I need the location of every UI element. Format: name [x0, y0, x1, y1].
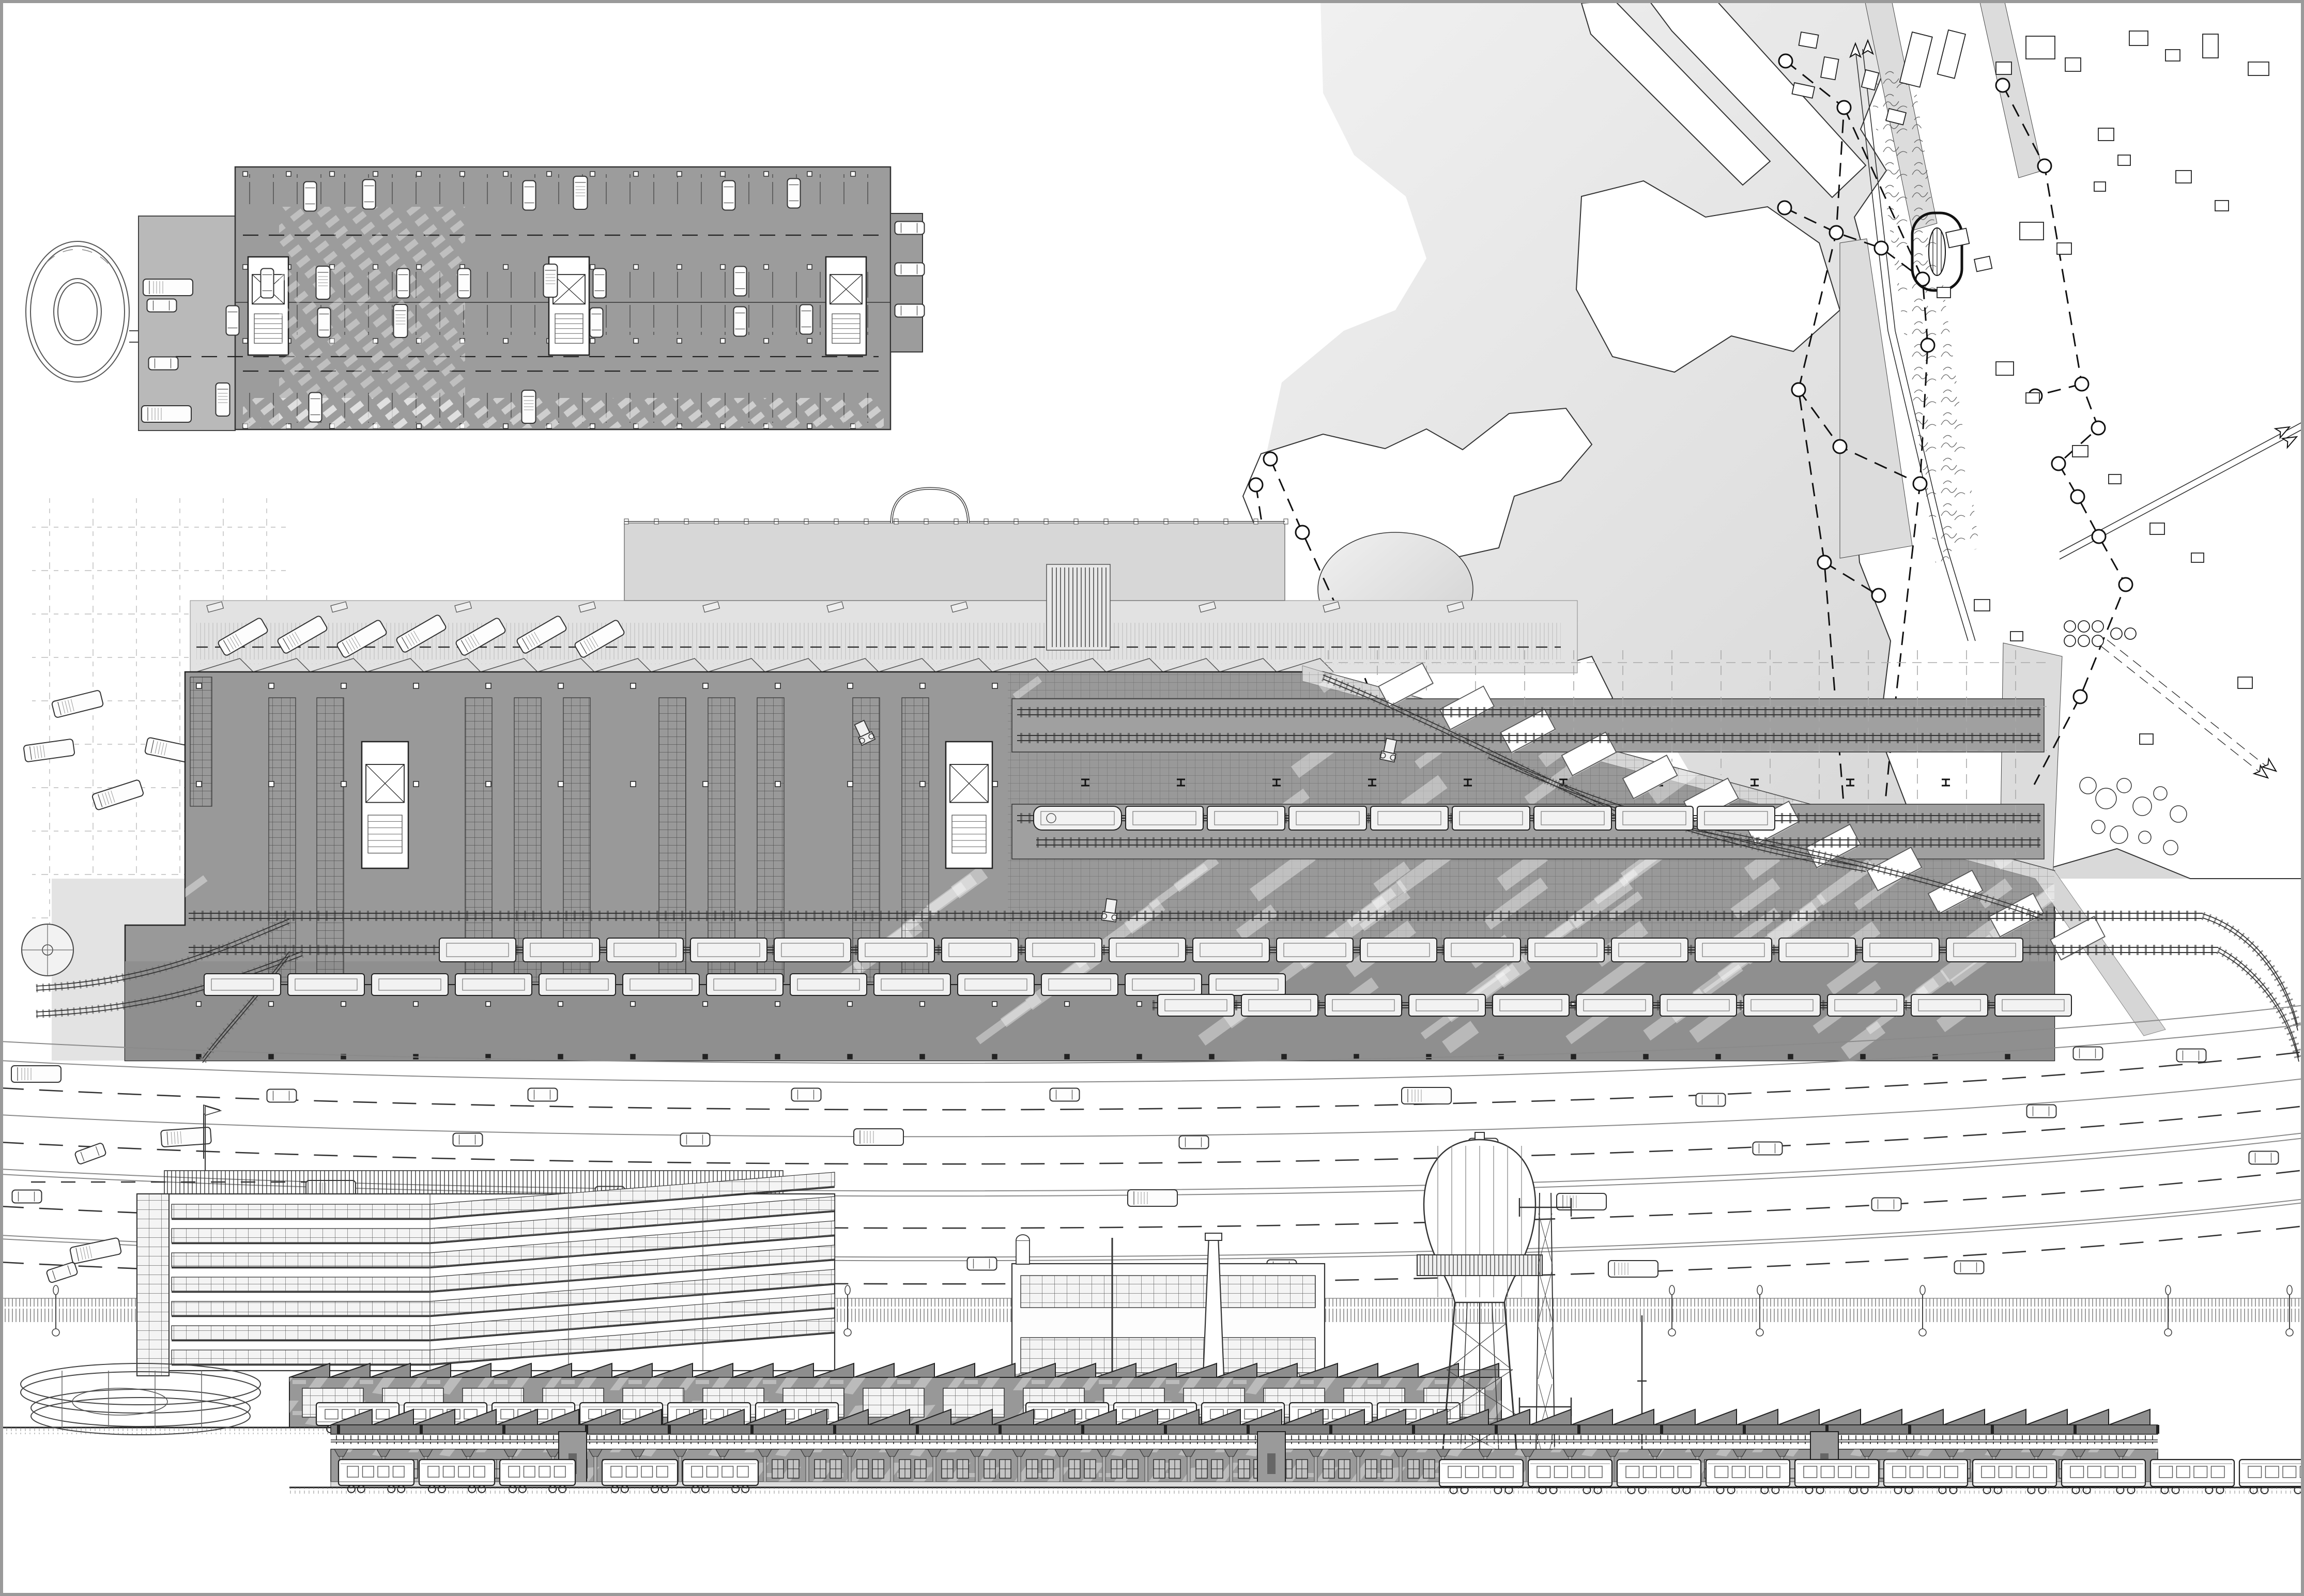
wagon — [439, 938, 523, 962]
wagon-body — [1444, 938, 1520, 962]
car-window — [2211, 1466, 2225, 1478]
map-building — [1996, 62, 2011, 74]
column — [848, 1054, 852, 1059]
wagon-body — [1534, 806, 1611, 830]
wagon — [706, 974, 790, 995]
car-plan — [309, 393, 322, 422]
lamp-base — [1919, 1329, 1926, 1336]
map-building — [2026, 393, 2039, 403]
car-plan — [895, 304, 925, 317]
car-window — [1999, 1466, 2013, 1478]
route-node — [1913, 477, 1927, 490]
route-node — [1249, 478, 1263, 492]
wagon-body — [1041, 974, 1118, 995]
wagon-body — [1493, 994, 1569, 1016]
lamp-head — [1757, 1285, 1762, 1295]
wagon — [1193, 938, 1277, 962]
route-node — [2092, 530, 2106, 543]
map-building — [2094, 182, 2106, 191]
bracket — [1577, 1425, 1580, 1434]
column — [677, 339, 682, 343]
vehicle-body — [1753, 1142, 1783, 1155]
car-window — [2248, 1466, 2262, 1478]
vehicle-body — [800, 305, 813, 334]
column — [1716, 1054, 1721, 1059]
route-node — [1837, 101, 1851, 114]
route-node — [2119, 578, 2132, 591]
truck-plan — [11, 1066, 61, 1082]
mushroom-stem — [763, 1456, 766, 1482]
lamp-base — [1756, 1329, 1763, 1336]
vehicle-body — [734, 267, 747, 296]
van-plan — [316, 266, 330, 299]
wagon — [1360, 938, 1444, 962]
car-window — [1910, 1466, 1924, 1478]
wagon-body — [1995, 994, 2071, 1016]
wagon — [1534, 806, 1616, 830]
column — [413, 781, 419, 787]
bracket — [1081, 1425, 1084, 1434]
car-window — [1572, 1466, 1585, 1478]
wagon-body — [1911, 994, 1988, 1016]
car-plan — [1753, 1142, 1783, 1155]
car-window — [738, 1466, 749, 1477]
car-plan — [1696, 1094, 1726, 1107]
car-window — [1678, 1466, 1692, 1478]
column — [417, 172, 421, 176]
wagon — [455, 974, 539, 995]
wagon-body — [288, 974, 364, 995]
column — [243, 339, 248, 343]
wagon-body — [439, 938, 516, 962]
map-building — [2020, 222, 2044, 240]
bracket — [750, 1425, 754, 1434]
elevator-core — [946, 742, 992, 868]
column — [848, 781, 853, 787]
mushroom-stem — [1230, 1456, 1233, 1482]
vehicle-body — [1872, 1198, 1901, 1211]
wagon-body — [1289, 806, 1366, 830]
truck-plan — [1608, 1261, 1658, 1277]
vehicle-body — [142, 406, 191, 422]
map-building — [2238, 677, 2252, 688]
vehicle-body — [261, 269, 274, 298]
column — [269, 1054, 273, 1059]
car-plan — [2249, 1152, 2279, 1164]
vehicle-body — [458, 269, 471, 298]
vehicle-body — [1179, 1136, 1209, 1149]
column — [631, 1054, 635, 1059]
wagon — [774, 938, 858, 962]
column — [720, 172, 725, 176]
car-plan — [2073, 1047, 2103, 1060]
wagon-body — [1697, 806, 1775, 830]
route-node — [1264, 452, 1277, 466]
car-window — [443, 1466, 455, 1477]
column — [631, 1002, 635, 1006]
column — [634, 172, 638, 176]
column — [558, 781, 563, 787]
column — [558, 1054, 563, 1059]
mushroom-stem — [1314, 1456, 1317, 1482]
wagon-body — [1660, 994, 1737, 1016]
vehicle-body — [1696, 1094, 1726, 1107]
car-plan — [147, 299, 177, 312]
column — [775, 1002, 780, 1006]
column — [677, 172, 682, 176]
column — [807, 339, 812, 343]
wagon — [1611, 938, 1695, 962]
wagon-body — [372, 974, 448, 995]
route-node — [2092, 421, 2105, 435]
column — [848, 683, 853, 688]
car-plan — [363, 180, 376, 209]
car-window — [1157, 1409, 1170, 1419]
finial — [1475, 1132, 1484, 1140]
column — [373, 172, 378, 176]
wagon-body — [1360, 938, 1437, 962]
vehicle-body — [2073, 1047, 2103, 1060]
bracket — [916, 1425, 919, 1434]
column — [330, 172, 334, 176]
car-window — [641, 1466, 653, 1477]
car-plan — [1050, 1088, 1080, 1101]
column — [1282, 1054, 1286, 1059]
wagon-body — [958, 974, 1034, 995]
wagon — [288, 974, 372, 995]
column — [590, 172, 595, 176]
wagon — [690, 938, 774, 962]
truck-plan — [143, 279, 193, 296]
car-plan — [1955, 1261, 1984, 1274]
car-window — [363, 1466, 374, 1477]
wagon-body — [1371, 806, 1448, 830]
lamp-head — [53, 1285, 58, 1295]
column — [503, 339, 508, 343]
mushroom-stem — [1145, 1456, 1148, 1482]
wagon — [623, 974, 706, 995]
car-plan — [590, 308, 603, 337]
vehicle-body — [304, 182, 317, 211]
wagon-body — [1193, 938, 1269, 962]
wagon-body — [1325, 994, 1402, 1016]
tractor-body — [1384, 738, 1396, 754]
lamp-head — [1920, 1285, 1925, 1295]
rail-ties — [189, 911, 2203, 921]
vehicle-body — [149, 357, 178, 370]
column — [1065, 1002, 1069, 1006]
vehicle-body — [147, 299, 177, 312]
car-plan — [788, 179, 801, 208]
bracket — [999, 1425, 1002, 1434]
car-plan — [149, 357, 178, 370]
wagon — [1528, 938, 1611, 962]
van-plan — [394, 304, 408, 337]
eave-fascia — [331, 1425, 2158, 1434]
car-window — [1643, 1466, 1657, 1478]
map-building — [2010, 632, 2023, 641]
car-window — [657, 1466, 668, 1477]
column — [720, 339, 725, 343]
wagon-body — [1827, 994, 1904, 1016]
car-window — [1945, 1466, 1958, 1478]
car-window — [2105, 1466, 2118, 1478]
wagon — [1241, 994, 1325, 1016]
wagon — [1109, 938, 1193, 962]
tank — [2092, 621, 2103, 632]
car-window — [2088, 1466, 2101, 1478]
column — [807, 172, 812, 176]
column — [413, 1002, 418, 1006]
car-window — [1821, 1466, 1835, 1478]
floor-window-band — [172, 1277, 430, 1291]
column — [503, 172, 508, 176]
column — [764, 265, 769, 269]
car-plan — [723, 181, 735, 210]
map-building — [1821, 57, 1839, 80]
column — [1861, 1054, 1865, 1059]
bracket — [1743, 1425, 1746, 1434]
column — [243, 172, 248, 176]
car-window — [1893, 1466, 1906, 1478]
wagon — [942, 938, 1025, 962]
map-building — [1799, 32, 1818, 49]
car-plan — [261, 269, 274, 298]
column — [1137, 1002, 1142, 1006]
map-building — [2248, 62, 2269, 75]
wagon — [1863, 938, 1946, 962]
map-building — [2176, 171, 2191, 183]
column — [286, 172, 291, 176]
vehicle-body — [2177, 1049, 2206, 1062]
wagon — [958, 974, 1041, 995]
truck-plan — [854, 1129, 903, 1145]
column — [503, 265, 508, 269]
column — [920, 683, 925, 688]
column — [486, 781, 491, 787]
wagon-body — [1744, 994, 1820, 1016]
car-plan — [681, 1133, 710, 1146]
wagon — [1126, 806, 1207, 830]
car-window — [1537, 1466, 1550, 1478]
lamp-head — [2165, 1285, 2171, 1295]
car-window — [2034, 1466, 2047, 1478]
column — [1209, 1054, 1214, 1059]
car-plan — [453, 1133, 483, 1146]
elevator-core — [362, 742, 408, 868]
wagon-body — [1277, 938, 1353, 962]
map-building — [2057, 243, 2071, 254]
vehicle-body — [1050, 1088, 1080, 1101]
office-window-band — [1021, 1276, 1315, 1308]
vehicle-body — [1955, 1261, 1984, 1274]
wagon-body — [1158, 994, 1234, 1016]
column — [631, 683, 636, 688]
car-window — [1804, 1466, 1817, 1478]
wagon — [523, 938, 607, 962]
wagon — [790, 974, 874, 995]
wagon — [1779, 938, 1863, 962]
vehicle-body — [226, 306, 239, 335]
vehicle-body — [453, 1133, 483, 1146]
mushroom-stem — [1018, 1456, 1021, 1482]
car-plan — [895, 263, 925, 276]
car-window — [1245, 1409, 1257, 1419]
car-window — [1749, 1466, 1763, 1478]
route-node — [1779, 54, 1792, 68]
wagon-body — [1779, 938, 1855, 962]
route-node — [1833, 440, 1847, 453]
vehicle-body — [397, 269, 410, 298]
vehicle-body — [2027, 1105, 2056, 1118]
wagon — [1125, 974, 1209, 995]
column — [634, 339, 638, 343]
car-window — [378, 1466, 389, 1477]
wagon-body — [858, 938, 934, 962]
car-window — [539, 1466, 550, 1477]
wagon — [1616, 806, 1697, 830]
car-window — [524, 1466, 535, 1477]
mushroom-stem — [1187, 1456, 1190, 1482]
column — [807, 265, 812, 269]
car-window — [2123, 1466, 2136, 1478]
lamp-base — [52, 1329, 59, 1336]
car-window — [428, 1466, 439, 1477]
column — [1137, 1054, 1142, 1059]
vehicle-body — [1402, 1087, 1451, 1104]
wagon — [1277, 938, 1360, 962]
column — [341, 1002, 346, 1006]
chimney-cap — [1205, 1233, 1222, 1240]
column — [269, 683, 274, 688]
mushroom-stem — [1102, 1456, 1105, 1482]
car-window — [1466, 1466, 1479, 1478]
wagon-body — [1109, 938, 1186, 962]
car-window — [722, 1466, 733, 1477]
column — [269, 781, 274, 787]
wagon — [1911, 994, 1995, 1016]
column — [460, 172, 465, 176]
shed-window — [943, 1388, 1004, 1417]
vehicle-body — [792, 1088, 821, 1101]
wagon-body — [942, 938, 1018, 962]
car-plan — [226, 306, 239, 335]
car-window — [347, 1466, 359, 1477]
route-node — [1818, 556, 1831, 569]
column — [764, 172, 769, 176]
column — [920, 1002, 925, 1006]
car-window — [626, 1466, 638, 1477]
map-building — [2098, 128, 2114, 141]
car-plan — [967, 1257, 997, 1270]
map-building — [2072, 446, 2088, 457]
bracket — [2156, 1425, 2159, 1434]
column — [590, 339, 595, 343]
wagon — [1995, 994, 2071, 1016]
car-window — [1732, 1466, 1746, 1478]
tank — [2078, 621, 2090, 632]
route-node — [1921, 339, 1934, 352]
column — [920, 781, 925, 787]
map-building — [2165, 50, 2180, 61]
lamp-base — [2164, 1329, 2172, 1336]
map-building — [2129, 31, 2148, 45]
mushroom-stem — [890, 1456, 894, 1482]
route-node — [1778, 201, 1791, 214]
bracket — [1329, 1425, 1332, 1434]
car-plan — [12, 1190, 42, 1203]
column — [486, 1002, 490, 1006]
car-window — [1838, 1466, 1852, 1478]
mushroom-stem — [933, 1456, 936, 1482]
column — [2005, 1054, 2010, 1059]
map-building — [2191, 553, 2204, 562]
route-node — [1296, 526, 1309, 539]
rack-block — [317, 698, 344, 982]
wagon — [607, 938, 690, 962]
vehicle-body — [267, 1089, 297, 1102]
lamp-base — [2286, 1329, 2293, 1336]
car-window — [1856, 1466, 1869, 1478]
column — [1571, 1054, 1576, 1059]
truss-band — [331, 1435, 2158, 1444]
wagon-body — [204, 974, 281, 995]
car-window — [1626, 1466, 1639, 1478]
column — [851, 172, 855, 176]
car-window — [1035, 1409, 1048, 1419]
car-window — [1555, 1466, 1568, 1478]
wagon — [1697, 806, 1775, 830]
stadium-building — [1929, 228, 1945, 275]
vehicle-body — [1608, 1261, 1658, 1277]
floor-window-band — [172, 1350, 430, 1364]
vehicle-body — [528, 1088, 558, 1101]
light-shaft-shading — [279, 207, 465, 429]
roof-stack — [1016, 1240, 1030, 1264]
column — [703, 683, 708, 688]
map-building — [1974, 600, 1990, 611]
column — [848, 1002, 852, 1006]
wagon — [1041, 974, 1125, 995]
van-plan — [216, 383, 230, 416]
car-window — [1982, 1466, 1995, 1478]
wagon — [1325, 994, 1409, 1016]
map-building — [2026, 36, 2055, 59]
lamp-head — [845, 1285, 850, 1295]
column — [1065, 1054, 1069, 1059]
route-node — [2038, 159, 2051, 173]
column — [634, 265, 638, 269]
column — [992, 1002, 997, 1006]
column — [1643, 1054, 1648, 1059]
floor-window-band — [172, 1253, 430, 1267]
car-window — [2283, 1466, 2296, 1478]
louver-slats — [1050, 567, 1107, 647]
wagon-body — [1207, 806, 1285, 830]
vehicle-body — [895, 304, 925, 317]
vehicle-body — [1128, 1190, 1177, 1206]
wagon-body — [1126, 806, 1203, 830]
column — [1354, 1054, 1359, 1059]
car-plan — [593, 269, 606, 298]
vehicle-body — [11, 1066, 61, 1082]
shed-window — [863, 1388, 924, 1417]
truck-plan — [142, 406, 191, 422]
truck-plan — [1402, 1087, 1451, 1104]
wagon-body — [1616, 806, 1693, 830]
car-window — [325, 1409, 338, 1419]
car-window — [413, 1409, 426, 1419]
